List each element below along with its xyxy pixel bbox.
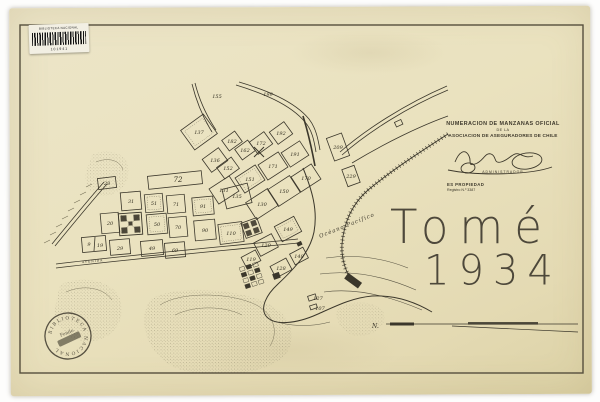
map-year: 1934 [424,247,562,295]
block-number-90: 90 [202,228,209,234]
survey-cross-icon [254,147,264,157]
block-number-131: 131 [219,188,229,194]
north-indicator: N. [371,322,578,332]
block-number-49: 49 [148,246,156,252]
block-number-171: 171 [268,164,278,170]
block-number-199: 199 [263,92,273,98]
pier [344,273,362,289]
block-number-71: 71 [173,202,179,208]
block-number-107: 107 [315,306,325,312]
block-number-31: 31 [128,199,134,205]
block-number-51: 51 [151,201,157,207]
block-number-130: 130 [257,202,267,208]
block-number-110: 110 [226,231,236,237]
block-number-28: 28 [103,181,110,187]
barcode-icon [32,31,86,46]
block-number-170: 170 [301,176,311,182]
title-line-3: ASOCIACION DE ASEGURADORES DE CHILE [438,133,568,138]
property-notice-block: ES PROPIEDAD Registro N.º 3387 [447,182,484,192]
block-number-229: 229 [345,174,356,180]
signature-caption: ADMINISTRADOR [438,170,568,174]
block-number-29: 29 [116,246,124,252]
barcode-number: 101941 [32,46,86,52]
hillside-hachures [44,184,92,243]
block-number-50: 50 [154,222,161,228]
block-number-72: 72 [174,176,183,184]
block-number-69: 69 [172,248,179,254]
block-number-151: 151 [245,177,255,183]
title-block: NUMERACION DE MANZANAS OFICIAL DE LA ASO… [438,121,568,174]
title-line-2: DE LA [438,128,568,132]
block-number-127: 127 [313,296,323,302]
block-number-135: 135 [232,194,242,200]
block-number-172: 172 [256,141,266,147]
block-number-149: 149 [283,227,293,233]
scanned-map-page: 2872315171911352050709011091929496913715… [0,0,600,402]
block-number-119: 119 [246,257,256,263]
block-number-137: 137 [194,130,204,136]
block-number-162: 162 [240,148,250,154]
block-number-150: 150 [279,189,289,195]
block-number-19: 19 [97,243,104,249]
block-number-192: 192 [276,131,286,137]
plaza-secondary [241,218,262,239]
pier-and-buildings [272,241,362,289]
block-number-182: 182 [227,139,237,145]
block-number-129: 129 [261,243,271,249]
block-number-9: 9 [87,242,91,248]
block-number-136: 136 [210,158,220,164]
block-number-128: 128 [276,266,286,272]
barcode-library-name: BIBLIOTECA NACIONAL [32,25,86,31]
block-number-91: 91 [200,204,206,210]
registry-number: Registro N.º 3387 [447,188,484,192]
title-line-1: NUMERACION DE MANZANAS OFICIAL [438,121,568,127]
block-number-209: 209 [332,145,343,151]
library-barcode-sticker: BIBLIOTECA NACIONAL 101941 [29,23,90,54]
block-number-148: 148 [294,254,304,260]
property-notice: ES PROPIEDAD [447,182,484,187]
block-number-155: 155 [212,94,222,100]
block-number-152: 152 [223,166,233,172]
block-number-191: 191 [290,152,300,158]
north-label: N. [371,323,379,330]
ocean-label: Océano Pacífico [318,211,376,240]
block-number-70: 70 [175,225,182,231]
plaza-principal [118,212,142,236]
block-number-20: 20 [106,221,114,227]
